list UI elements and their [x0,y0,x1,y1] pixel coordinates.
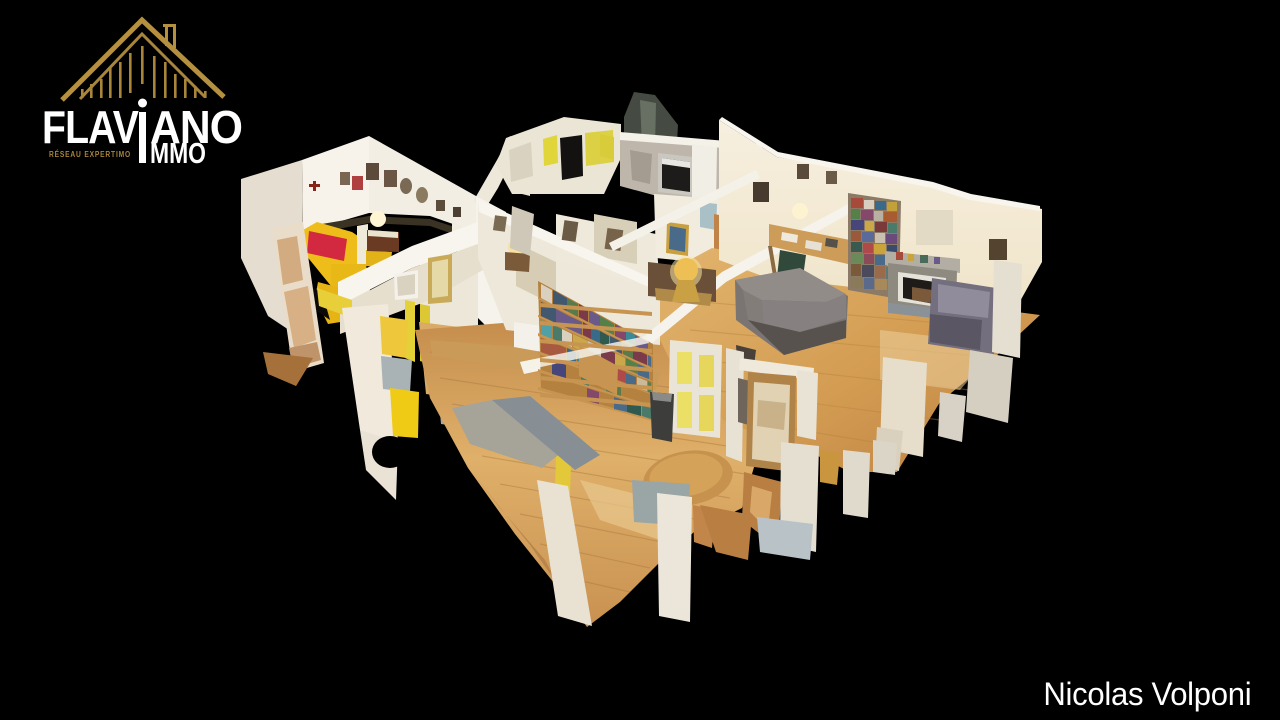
svg-text:RÉSEAU EXPERTIMO: RÉSEAU EXPERTIMO [49,150,131,159]
svg-text:MMO: MMO [150,138,206,170]
svg-text:FLAV: FLAV [42,101,139,153]
